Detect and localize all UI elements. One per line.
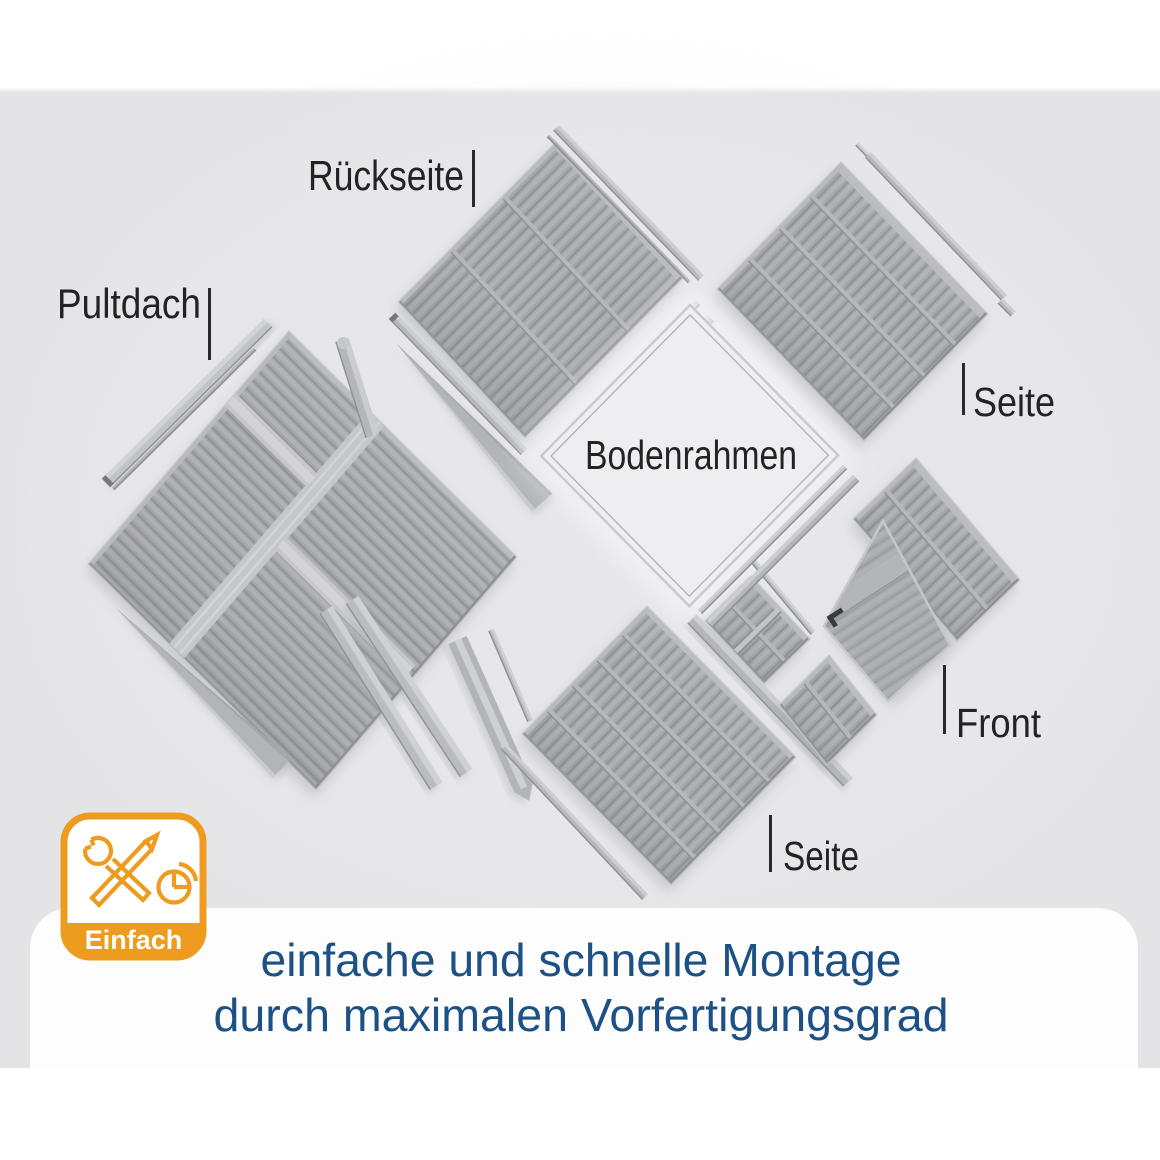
svg-text:Rückseite: Rückseite (308, 152, 464, 199)
svg-text:Bodenrahmen: Bodenrahmen (585, 432, 797, 478)
svg-text:Einfach: Einfach (85, 925, 183, 955)
svg-text:Pultdach: Pultdach (57, 280, 201, 327)
svg-text:Front: Front (956, 700, 1042, 746)
svg-text:Seite: Seite (783, 833, 859, 879)
svg-text:Seite: Seite (973, 379, 1055, 425)
svg-text:durch maximalen Vorfertigungsg: durch maximalen Vorfertigungsgrad (214, 989, 949, 1041)
svg-text:einfache und schnelle Montage: einfache und schnelle Montage (261, 934, 902, 986)
